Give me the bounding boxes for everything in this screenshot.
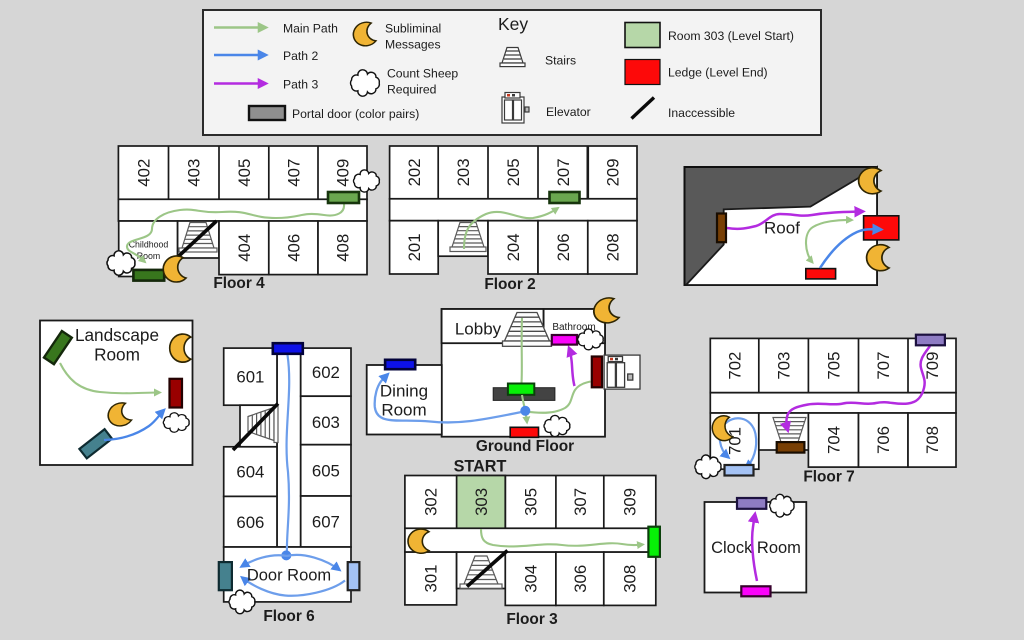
svg-text:705: 705	[824, 352, 843, 380]
svg-text:Path 3: Path 3	[283, 78, 318, 92]
svg-text:308: 308	[621, 565, 640, 593]
svg-text:Clock Room: Clock Room	[711, 539, 801, 557]
svg-text:405: 405	[235, 159, 254, 187]
svg-text:203: 203	[454, 158, 473, 186]
svg-text:Floor 2: Floor 2	[484, 276, 535, 293]
svg-text:Subliminal: Subliminal	[385, 22, 441, 36]
svg-text:605: 605	[312, 461, 340, 480]
svg-text:407: 407	[284, 159, 303, 187]
svg-text:201: 201	[405, 233, 424, 261]
svg-text:Floor 3: Floor 3	[506, 611, 557, 628]
svg-text:207: 207	[554, 158, 573, 186]
svg-text:302: 302	[422, 488, 441, 516]
svg-text:703: 703	[775, 352, 794, 380]
svg-text:Landscape: Landscape	[75, 325, 159, 345]
svg-text:Stairs: Stairs	[545, 54, 576, 68]
svg-text:205: 205	[504, 158, 523, 186]
svg-text:702: 702	[726, 352, 745, 380]
svg-text:701: 701	[726, 427, 745, 455]
svg-text:603: 603	[312, 413, 340, 432]
svg-text:604: 604	[236, 463, 264, 482]
svg-text:404: 404	[235, 234, 254, 262]
svg-text:START: START	[454, 458, 507, 476]
svg-text:309: 309	[621, 488, 640, 516]
svg-text:Ground Floor: Ground Floor	[476, 438, 574, 455]
svg-text:704: 704	[824, 426, 843, 454]
svg-text:307: 307	[571, 488, 590, 516]
svg-text:406: 406	[284, 234, 303, 262]
svg-text:306: 306	[571, 565, 590, 593]
svg-text:402: 402	[134, 159, 153, 187]
svg-text:Messages: Messages	[385, 38, 441, 52]
svg-text:202: 202	[405, 158, 424, 186]
svg-text:Floor 7: Floor 7	[803, 469, 854, 486]
svg-text:Roof: Roof	[764, 219, 800, 238]
svg-text:709: 709	[923, 352, 942, 380]
svg-text:Ledge (Level End): Ledge (Level End)	[668, 66, 768, 80]
svg-text:Room: Room	[381, 401, 426, 420]
svg-text:606: 606	[236, 513, 264, 532]
svg-text:303: 303	[472, 488, 491, 516]
svg-text:Count Sheep: Count Sheep	[387, 67, 458, 81]
svg-text:403: 403	[185, 159, 204, 187]
svg-text:Key: Key	[498, 14, 528, 34]
svg-text:Path 2: Path 2	[283, 49, 318, 63]
svg-text:601: 601	[236, 367, 264, 386]
svg-text:Required: Required	[387, 83, 436, 97]
svg-text:208: 208	[603, 233, 622, 261]
svg-text:Room: Room	[137, 251, 160, 261]
svg-text:Elevator: Elevator	[546, 105, 591, 119]
svg-text:Floor 4: Floor 4	[213, 275, 265, 292]
svg-text:301: 301	[422, 565, 441, 593]
svg-text:Door Room: Door Room	[247, 567, 331, 585]
svg-text:607: 607	[312, 512, 340, 531]
svg-text:206: 206	[554, 233, 573, 261]
svg-text:Main Path: Main Path	[283, 22, 338, 36]
svg-text:Inaccessible: Inaccessible	[668, 106, 735, 120]
svg-text:706: 706	[874, 426, 893, 454]
svg-text:Floor 6: Floor 6	[263, 608, 314, 625]
svg-text:408: 408	[333, 234, 352, 262]
svg-text:Room: Room	[94, 345, 140, 365]
svg-text:Lobby: Lobby	[455, 320, 502, 339]
svg-text:707: 707	[874, 352, 893, 380]
svg-text:304: 304	[522, 565, 541, 593]
svg-text:Dining: Dining	[380, 382, 428, 401]
svg-text:708: 708	[923, 426, 942, 454]
svg-text:Room 303 (Level Start): Room 303 (Level Start)	[668, 29, 794, 43]
svg-text:602: 602	[312, 363, 340, 382]
svg-text:Portal door (color pairs): Portal door (color pairs)	[292, 107, 419, 121]
svg-text:409: 409	[333, 159, 352, 187]
svg-text:305: 305	[522, 488, 541, 516]
svg-text:209: 209	[603, 158, 622, 186]
svg-text:204: 204	[504, 233, 523, 261]
